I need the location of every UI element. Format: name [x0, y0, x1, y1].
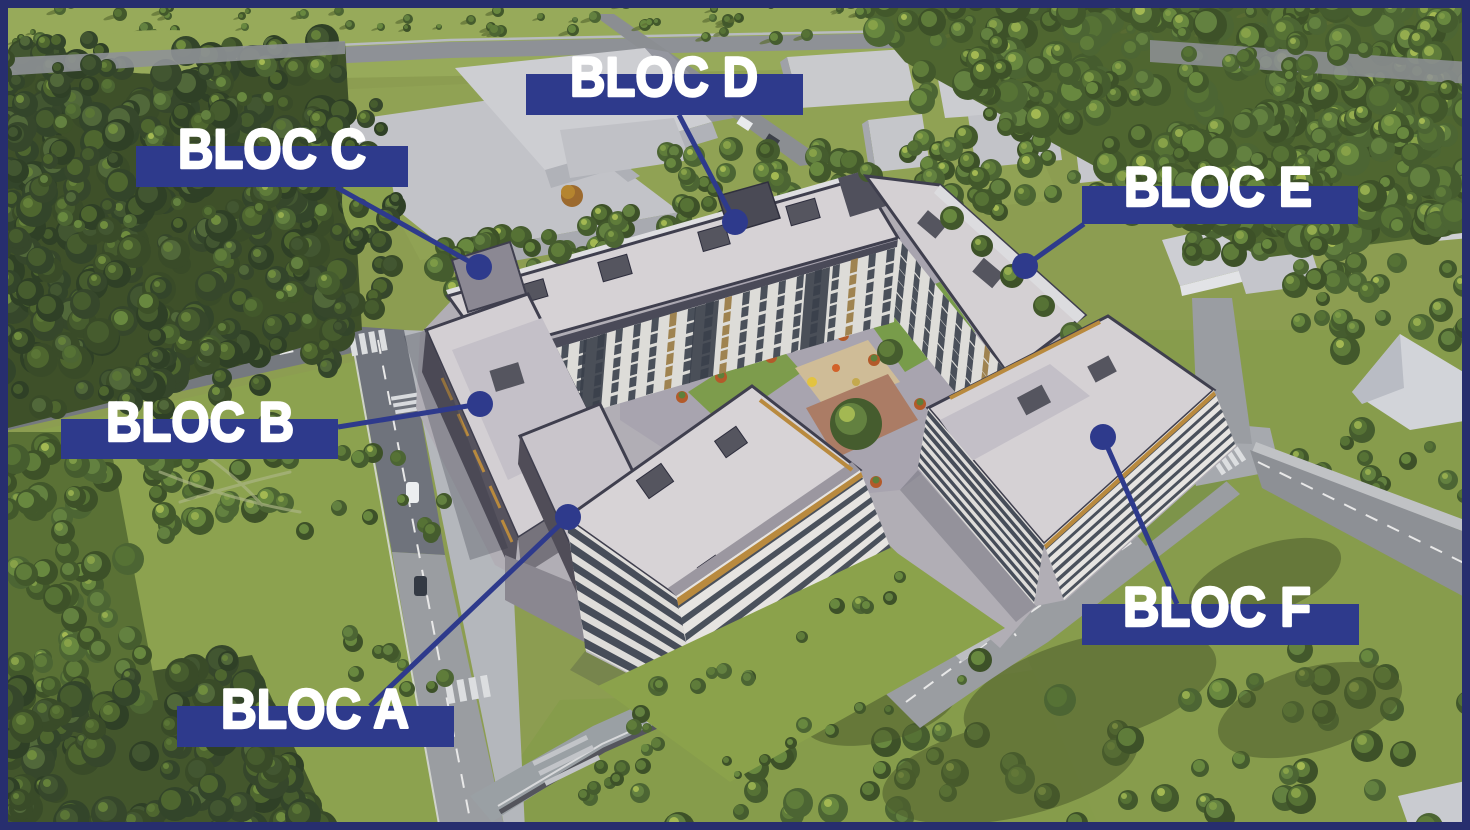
svg-text:BLOC A: BLOC A	[221, 677, 409, 740]
svg-text:BLOC C: BLOC C	[178, 117, 366, 180]
svg-text:BLOC D: BLOC D	[570, 45, 758, 108]
svg-text:BLOC F: BLOC F	[1123, 575, 1311, 638]
svg-text:BLOC E: BLOC E	[1124, 155, 1312, 218]
svg-text:BLOC B: BLOC B	[106, 390, 294, 453]
